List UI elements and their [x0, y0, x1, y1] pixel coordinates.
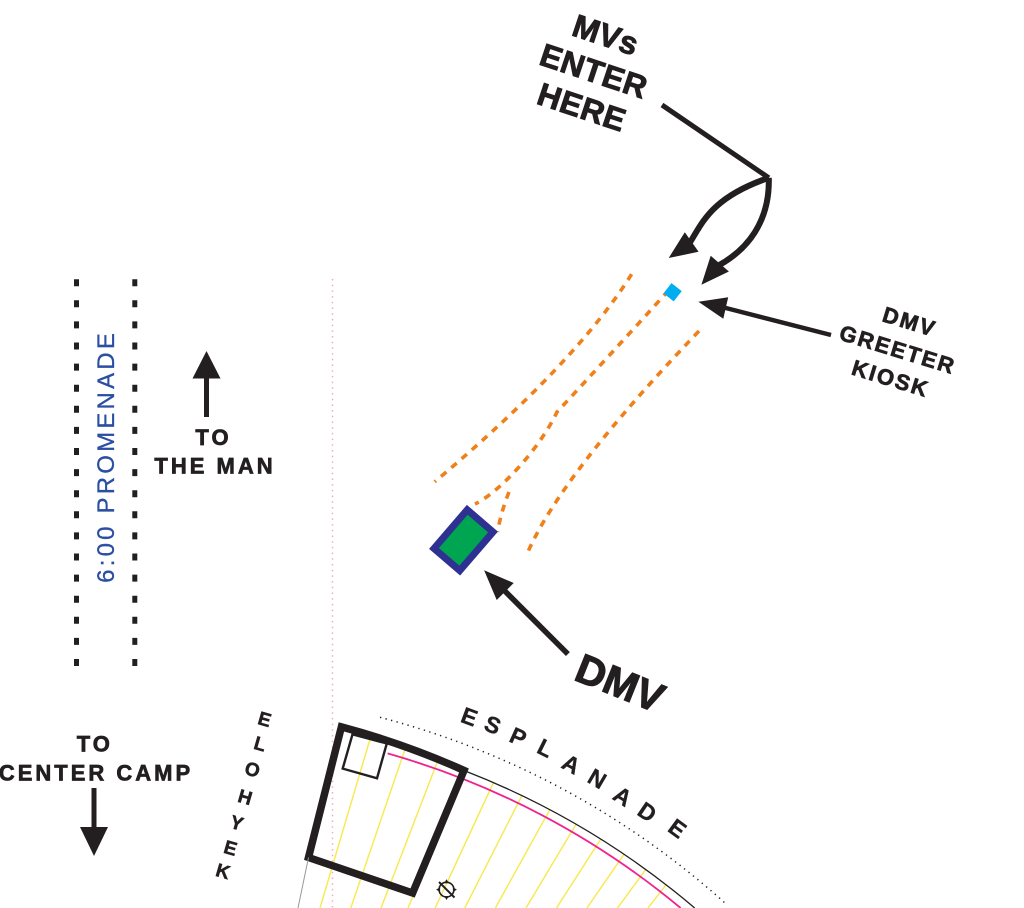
svg-text:6:00 PROMENADE: 6:00 PROMENADE [93, 330, 120, 583]
svg-text:TO: TO [77, 732, 113, 757]
svg-text:TO: TO [195, 425, 231, 450]
svg-text:THE MAN: THE MAN [154, 454, 275, 479]
svg-text:CENTER CAMP: CENTER CAMP [0, 761, 193, 786]
